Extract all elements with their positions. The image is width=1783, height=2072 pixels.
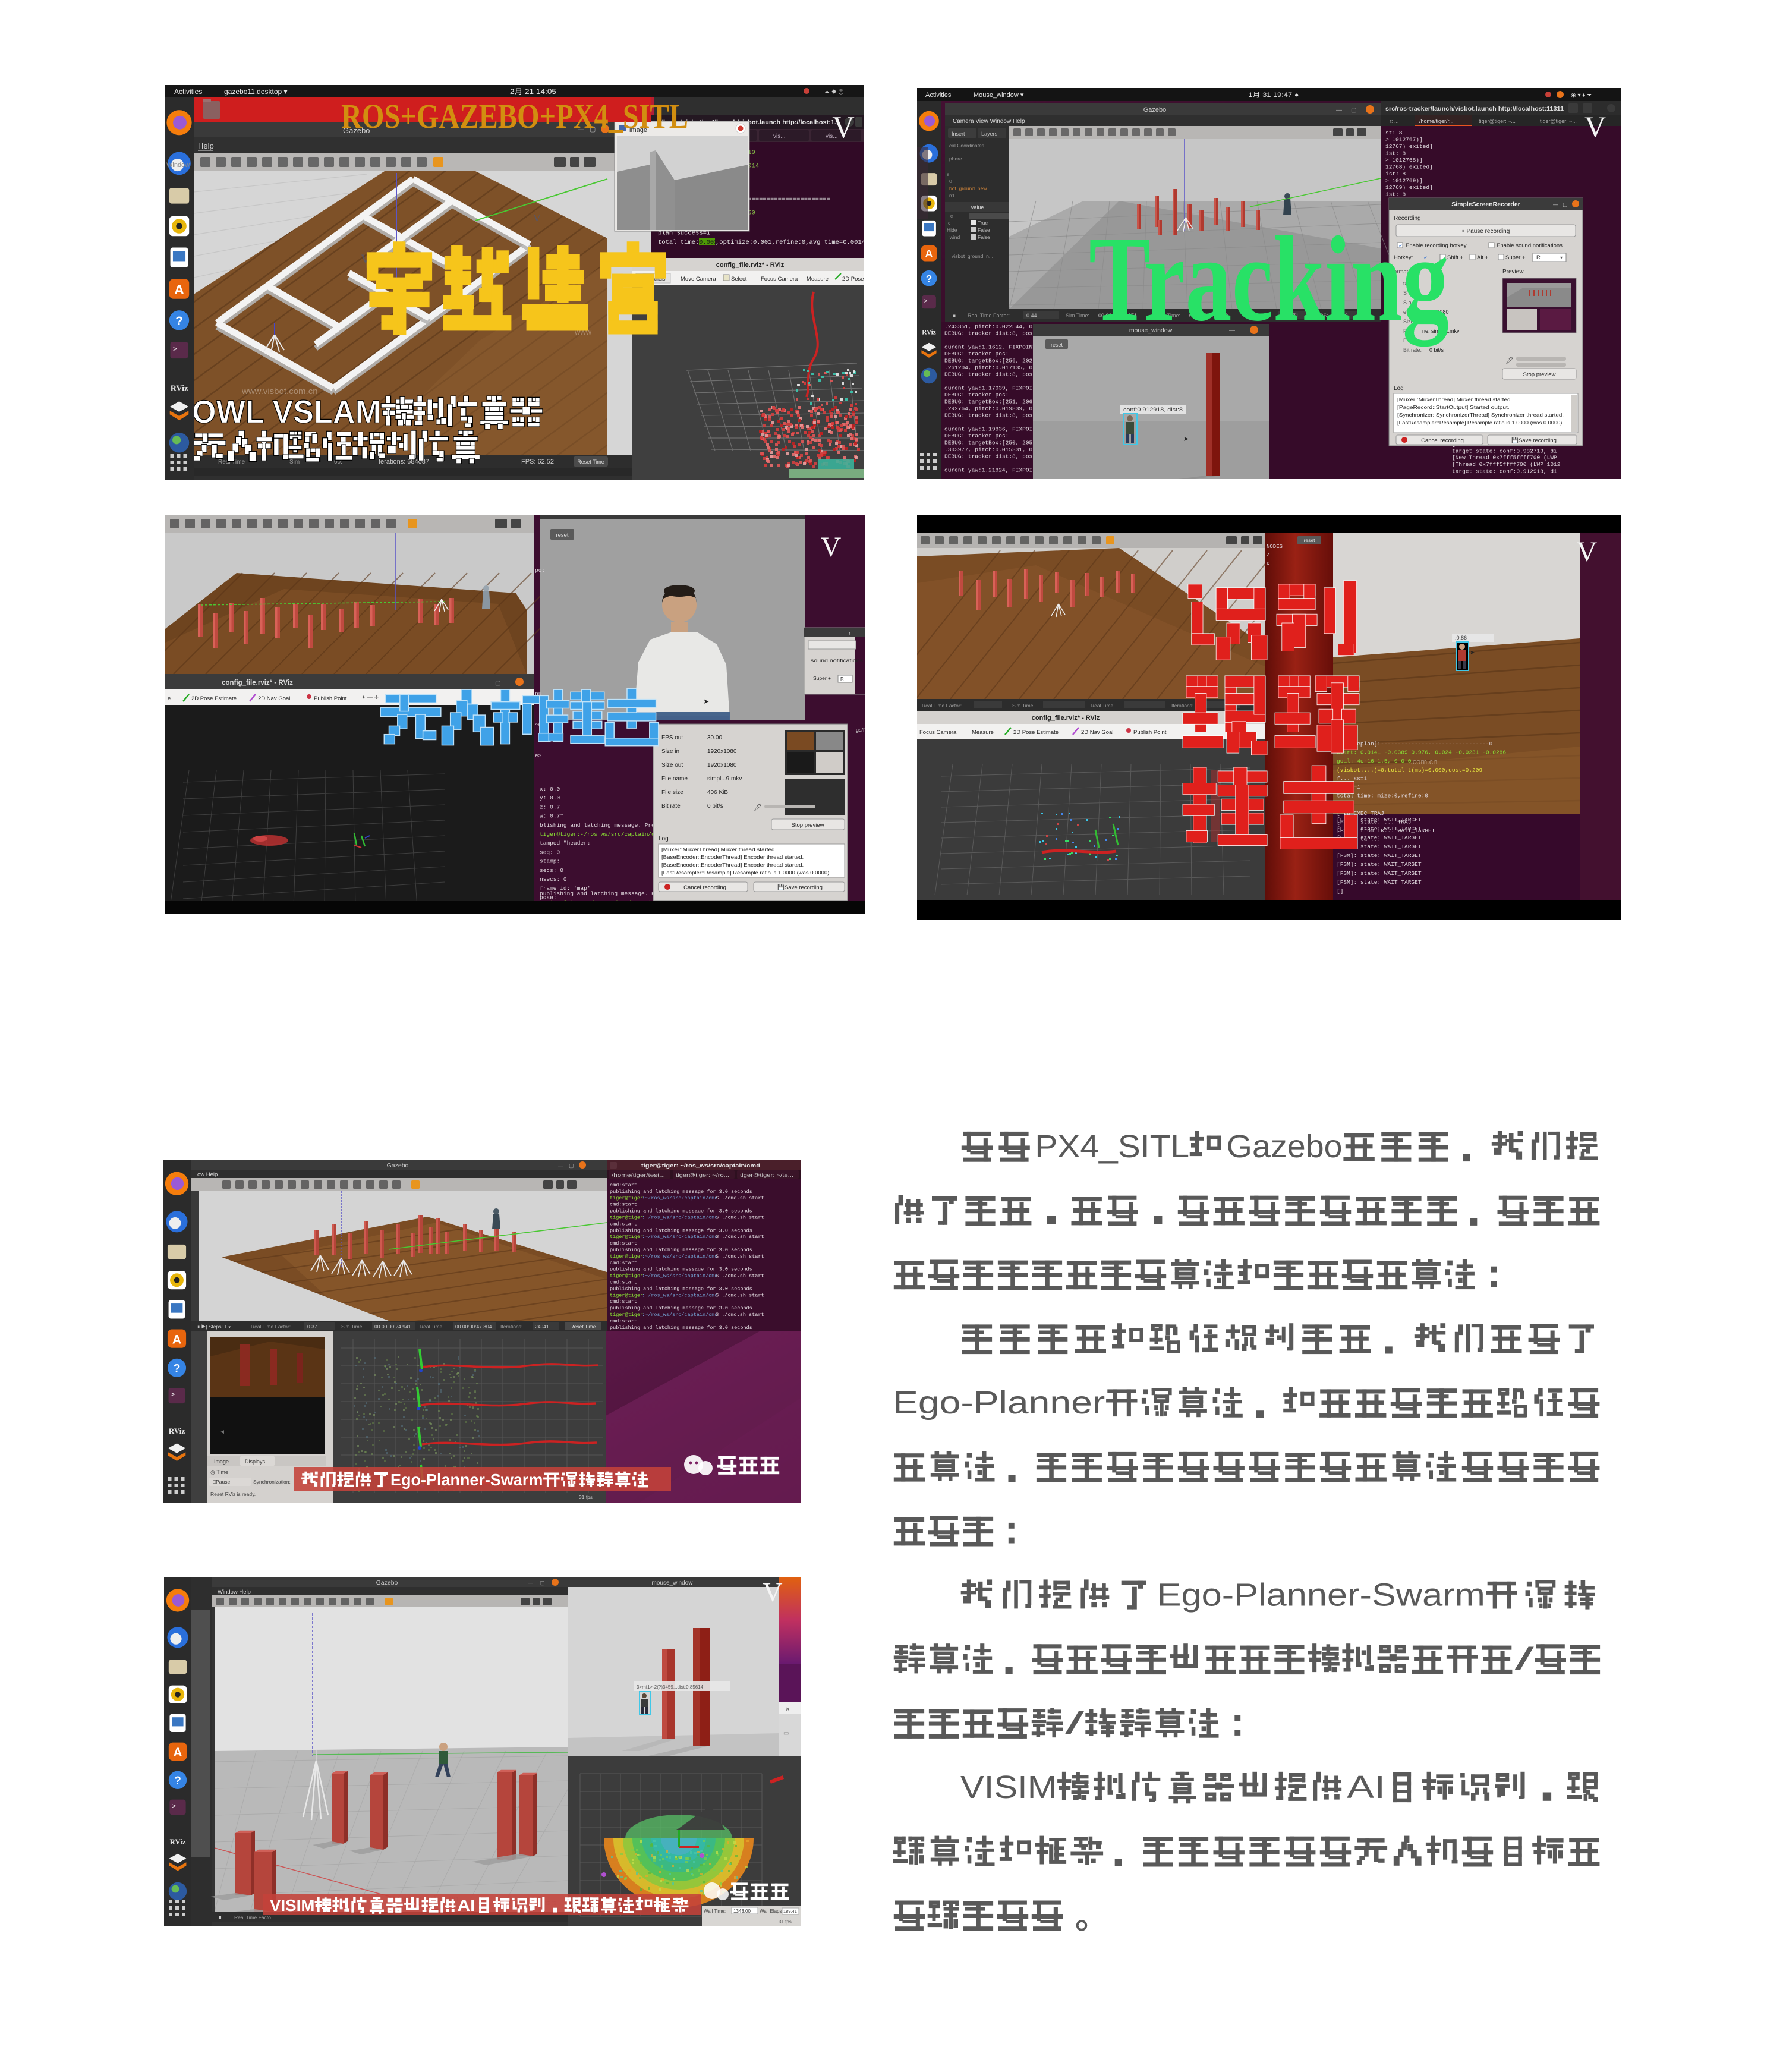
- svg-text:▭: ▭: [783, 1730, 789, 1737]
- svg-text:[FastResampler::Resample] Resa: [FastResampler::Resample] Resample ratio…: [661, 870, 831, 876]
- svg-text:$ ./cmd.sh start: $ ./cmd.sh start: [716, 1273, 764, 1279]
- svg-text:Iterations:: Iterations:: [500, 1324, 522, 1330]
- svg-text:$ ./cmd.sh start: $ ./cmd.sh start: [716, 1312, 764, 1318]
- svg-text:—: —: [528, 1580, 533, 1586]
- svg-text:➤: ➤: [1183, 436, 1189, 443]
- svg-text:cmd:start: cmd:start: [610, 1221, 637, 1227]
- svg-text:00 00:00:47.304: 00 00:00:47.304: [455, 1324, 492, 1330]
- svg-text:/: /: [1514, 1641, 1534, 1677]
- svg-text:A: A: [173, 1746, 182, 1759]
- svg-text:tiger@tiger: ~/ros_ws/src/capt: tiger@tiger: ~/ros_ws/src/captain/cmd: [641, 1163, 760, 1169]
- svg-text:DEBUG: targetBox:[250, 205,: DEBUG: targetBox:[250, 205,: [944, 440, 1036, 446]
- svg-text:VISIM: VISIM: [960, 1769, 1057, 1805]
- svg-text:c: c: [950, 213, 953, 219]
- svg-text:cmd:start: cmd:start: [610, 1240, 637, 1246]
- svg-text:tiger@tiger: tiger@tiger: [610, 1312, 643, 1318]
- svg-text::~/ros_ws/src/captain/cmd: :~/ros_ws/src/captain/cmd: [642, 1195, 718, 1201]
- svg-text:goal: 4e-16 1.5,: goal: 4e-16 1.5, 0 0 0: [1337, 758, 1412, 764]
- svg-text:x: 0.0: x: 0.0: [540, 786, 560, 792]
- svg-text:.303977, pitch:0.015331, 0.: .303977, pitch:0.015331, 0.: [944, 446, 1036, 453]
- svg-text:2D Nav Goal: 2D Nav Goal: [258, 695, 290, 702]
- svg-text:cal Coordinates: cal Coordinates: [949, 143, 984, 149]
- svg-text:/: /: [1065, 1705, 1085, 1741]
- svg-text:curent yaw:1.1612, FIXPOINT: curent yaw:1.1612, FIXPOINT: [944, 344, 1036, 351]
- svg-text:Sim Time:: Sim Time:: [1012, 703, 1035, 708]
- svg-text:Insert: Insert: [952, 131, 965, 137]
- svg-text:po:: po:: [535, 567, 545, 574]
- svg-text:DEBUG: tracker pos:: DEBUG: tracker pos:: [944, 433, 1009, 439]
- svg-text:0 bit/s: 0 bit/s: [1429, 347, 1444, 353]
- svg-text:V: V: [1584, 110, 1606, 143]
- svg-text:Mouse_window ▾: Mouse_window ▾: [974, 92, 1024, 99]
- svg-text:⏶ ◆ ⏻: ⏶ ◆ ⏻: [824, 89, 844, 96]
- svg-text:File size: File size: [661, 789, 683, 796]
- svg-text:✕: ✕: [785, 1706, 790, 1713]
- svg-text:[FastResampler::Resample] Resa: [FastResampler::Resample] Resample ratio…: [1397, 420, 1564, 426]
- svg-text:.261204, pitch:0.017135, 0.: .261204, pitch:0.017135, 0.: [944, 364, 1036, 371]
- svg-text:Cancel recording: Cancel recording: [1421, 437, 1464, 444]
- svg-text:[FSM]: state: WAIT_TARGET: [FSM]: state: WAIT_TARGET: [1337, 861, 1422, 868]
- svg-text:⏸: ⏸: [953, 313, 956, 320]
- svg-text:Sim Time:: Sim Time:: [1066, 313, 1089, 319]
- svg-text:Preview: Preview: [1502, 269, 1524, 275]
- svg-text:V: V: [533, 212, 541, 224]
- svg-text:Cancel recording: Cancel recording: [683, 884, 726, 891]
- svg-text:gs/P: gs/P: [856, 727, 865, 733]
- svg-text:ow Help: ow Help: [197, 1172, 218, 1178]
- svg-text:Real Time:: Real Time:: [1091, 703, 1115, 708]
- svg-text:Sim Time:: Sim Time:: [341, 1324, 364, 1330]
- svg-text:tiger@tiger: tiger@tiger: [610, 1234, 643, 1240]
- svg-text:eS: eS: [535, 752, 542, 759]
- svg-text:> 1012769)]: > 1012769)]: [1385, 178, 1423, 184]
- svg-text:Log: Log: [659, 836, 669, 842]
- svg-text:>: >: [924, 298, 928, 305]
- svg-text:publishing and latching messag: publishing and latching message for 3.0 …: [610, 1325, 752, 1331]
- svg-text:30.00: 30.00: [707, 735, 722, 741]
- svg-text:Focus Camera: Focus Camera: [761, 276, 798, 282]
- svg-text:r: r: [849, 631, 850, 637]
- svg-text:12769) exited]: 12769) exited]: [1385, 184, 1433, 191]
- svg-text:Super +: Super +: [1505, 254, 1526, 261]
- svg-text:.com.cn: .com.cn: [1410, 757, 1438, 766]
- svg-text:[PageRecord::StartOutput] Star: [PageRecord::StartOutput] Started output…: [1397, 404, 1510, 410]
- svg-text:31 fps: 31 fps: [779, 1919, 792, 1925]
- svg-text:—: —: [1336, 107, 1342, 114]
- svg-text:RViz: RViz: [170, 1838, 186, 1846]
- svg-text:Iterations:: Iterations:: [1171, 703, 1193, 708]
- svg-text:Publish Point: Publish Point: [1133, 729, 1167, 736]
- svg-text:y: 0.0: y: 0.0: [540, 795, 560, 801]
- svg-text:31 fps: 31 fps: [579, 1494, 593, 1500]
- svg-text:[Muxer::MuxerThread] Muxer thr: [Muxer::MuxerThread] Muxer thread starte…: [1397, 396, 1512, 402]
- svg-text:/home/tiger/test...: /home/tiger/test...: [612, 1172, 665, 1178]
- svg-text:>: >: [172, 1803, 176, 1810]
- svg-text:.292764, pitch:0.019839, 0.: .292764, pitch:0.019839, 0.: [944, 405, 1036, 412]
- svg-text:▢: ▢: [1563, 201, 1568, 207]
- svg-text:publishing and latching messag: publishing and latching message for 3.0 …: [610, 1247, 752, 1253]
- svg-text:cmd:start: cmd:start: [610, 1280, 637, 1286]
- svg-text:[FSM]: state: WAIT_TARGET: [FSM]: state: WAIT_TARGET: [1337, 870, 1422, 877]
- svg-text:406 KiB: 406 KiB: [707, 789, 728, 796]
- svg-text:Super +: Super +: [813, 675, 831, 681]
- svg-text:curent yaw:1.19836, FIXPOIN: curent yaw:1.19836, FIXPOIN: [944, 426, 1036, 433]
- svg-text:ist: 8: ist: 8: [1385, 191, 1406, 198]
- svg-text:tiger@tiger: ~/te...: tiger@tiger: ~/te...: [740, 1172, 793, 1178]
- svg-text:mouse_window: mouse_window: [652, 1580, 694, 1586]
- svg-text:OWL VSLAM: OWL VSLAM: [192, 393, 381, 430]
- svg-text:s: s: [947, 171, 949, 177]
- svg-text:Log: Log: [1394, 385, 1404, 392]
- svg-text:0.44: 0.44: [1026, 313, 1037, 319]
- svg-text:NODES: NODES: [1267, 544, 1283, 550]
- svg-text:?: ?: [174, 1775, 181, 1787]
- svg-text::~/ros_ws/src/captain/cmd: :~/ros_ws/src/captain/cmd: [642, 1234, 718, 1240]
- svg-text:Gazebo: Gazebo: [376, 1579, 398, 1586]
- svg-text:0.37: 0.37: [307, 1324, 317, 1330]
- svg-text:[Ego replan]:-----------------: [Ego replan]:---------------------------…: [1337, 741, 1493, 747]
- svg-text:2D Pose Estimate: 2D Pose Estimate: [191, 695, 237, 702]
- svg-text:Image: Image: [214, 1459, 229, 1465]
- svg-text:tiger@tiger:-/ros_ws/src/capta: tiger@tiger:-/ros_ws/src/captain/c: [540, 831, 655, 837]
- svg-text:V: V: [1243, 621, 1248, 629]
- svg-text:ist: 8: ist: 8: [1385, 150, 1406, 157]
- svg-text:Real Time Factor:: Real Time Factor:: [922, 703, 962, 708]
- svg-text:tiger@tiger: tiger@tiger: [610, 1292, 643, 1298]
- svg-text:V: V: [821, 531, 842, 563]
- svg-text:Stop preview: Stop preview: [792, 822, 824, 829]
- svg-text:[FSM]: state: WAIT_TARGET: [FSM]: state: WAIT_TARGET: [1337, 852, 1422, 859]
- svg-text:1920x1080: 1920x1080: [707, 748, 737, 755]
- svg-text:$ ./cmd.sh start: $ ./cmd.sh start: [716, 1195, 764, 1201]
- svg-text:0.001: 0.001: [699, 239, 718, 246]
- svg-text:r: ...: r: ...: [1390, 118, 1399, 124]
- svg-text:publishing and latching messag: publishing and latching message for 3.0 …: [610, 1286, 752, 1292]
- svg-text:A: A: [925, 248, 933, 260]
- svg-text:reset: reset: [556, 532, 568, 539]
- svg-text:False: False: [978, 234, 990, 240]
- svg-text:Focus Camera: Focus Camera: [919, 729, 957, 736]
- svg-text:False: False: [978, 227, 990, 233]
- svg-text:Camera View Window Help: Camera View Window Help: [953, 118, 1025, 125]
- svg-text:V: V: [1577, 536, 1598, 568]
- svg-text:189.41: 189.41: [783, 1909, 797, 1914]
- svg-text:◄: ◄: [219, 1429, 225, 1435]
- svg-text:⏸ ▶| Steps: 1 ▾: ⏸ ▶| Steps: 1 ▾: [197, 1324, 231, 1330]
- svg-text:1月 31 19:47 ●: 1月 31 19:47 ●: [1249, 92, 1299, 99]
- svg-text:V: V: [832, 111, 855, 144]
- svg-text:reset: reset: [1304, 537, 1316, 543]
- svg-text:$ ./cmd.sh start: $ ./cmd.sh start: [716, 1292, 764, 1298]
- svg-text::~/ros_ws/src/captain/cmd: :~/ros_ws/src/captain/cmd: [642, 1273, 718, 1279]
- svg-text:⎕Pause: ⎕Pause: [213, 1479, 230, 1485]
- svg-text:3>mf1>-2(?)3459...dist:0.85614: 3>mf1>-2(?)3459...dist:0.85614: [637, 1684, 704, 1690]
- svg-text:start: 0.0141 -0.0389 0.976: start: 0.0141 -0.0389 0.976, 0.024 -0.02…: [1337, 750, 1506, 756]
- svg-text:▢: ▢: [569, 1163, 574, 1169]
- svg-text:File name: File name: [661, 776, 688, 782]
- svg-text:Real Time:: Real Time:: [420, 1324, 444, 1330]
- svg-text:Window: Window: [166, 162, 190, 169]
- svg-text:total time:: total time:: [658, 239, 699, 246]
- svg-text:Alt +: Alt +: [1477, 254, 1489, 261]
- svg-text:SimpleScreenRecorder: SimpleScreenRecorder: [1451, 201, 1520, 208]
- svg-text:publishing and latching messag: publishing and latching message for 3.0 …: [610, 1208, 752, 1214]
- svg-text:▢: ▢: [1351, 107, 1356, 114]
- svg-text:💾Save recording: 💾Save recording: [777, 884, 823, 891]
- svg-text:vis...: vis...: [773, 133, 786, 140]
- svg-text:Measure: Measure: [807, 276, 829, 282]
- svg-text:seq: 0: seq: 0: [540, 849, 560, 855]
- svg-text:V: V: [763, 1577, 782, 1607]
- svg-text:> 1012768)]: > 1012768)]: [1385, 157, 1423, 163]
- svg-text:stamp:: stamp:: [540, 858, 560, 865]
- svg-text:💾Save recording: 💾Save recording: [1511, 437, 1557, 444]
- svg-text:▢: ▢: [540, 1580, 545, 1586]
- svg-text:Activities: Activities: [925, 92, 952, 99]
- svg-text:tiger@tiger: ~...: tiger@tiger: ~...: [1479, 118, 1516, 124]
- svg-text:Displays: Displays: [245, 1459, 266, 1465]
- svg-text:_wind: _wind: [946, 234, 960, 240]
- svg-text:Layers: Layers: [981, 131, 998, 137]
- svg-text:AI: AI: [1347, 1769, 1385, 1805]
- svg-text:[Thread 0x7fff5ffff700 (LWP 10: [Thread 0x7fff5ffff700 (LWP 1012: [1452, 461, 1561, 468]
- svg-text:1920x1080: 1920x1080: [707, 762, 737, 769]
- svg-text:DEBUG: tracker dist:8, pos:: DEBUG: tracker dist:8, pos:: [944, 454, 1036, 460]
- svg-text:DEBUG: tracker pos:: DEBUG: tracker pos:: [944, 392, 1009, 398]
- svg-text:DEBUG: tracker pos:: DEBUG: tracker pos:: [944, 351, 1009, 357]
- svg-text:PX4_SITL: PX4_SITL: [1035, 1130, 1189, 1164]
- svg-text:RViz: RViz: [169, 1427, 185, 1435]
- svg-text:Gazebo: Gazebo: [1227, 1130, 1343, 1164]
- svg-text:publishing and latching messag: publishing and latching message for 3.0 …: [610, 1267, 752, 1273]
- svg-text:Ego-Planner-Swarm: Ego-Planner-Swarm: [390, 1470, 543, 1489]
- svg-text:⏸: ⏸: [219, 1914, 222, 1921]
- svg-text:?: ?: [175, 314, 183, 328]
- svg-text:Sim: Sim: [289, 459, 300, 465]
- svg-text:.0.86: .0.86: [1455, 635, 1467, 641]
- svg-text:Window Help: Window Help: [218, 1589, 251, 1595]
- svg-text:DEBUG: tracker dist:8, pos:: DEBUG: tracker dist:8, pos:: [944, 371, 1036, 378]
- svg-text:12768) exited]: 12768) exited]: [1385, 164, 1433, 171]
- svg-text:Reset RViz is ready.: Reset RViz is ready.: [210, 1491, 256, 1497]
- svg-text:Reset Time: Reset Time: [577, 459, 604, 465]
- svg-text:st: 8: st: 8: [1385, 130, 1403, 136]
- svg-text:Help: Help: [198, 141, 214, 150]
- svg-text:2月 21 14:05: 2月 21 14:05: [510, 87, 556, 96]
- svg-text:?: ?: [926, 273, 932, 285]
- svg-text:tiger@tiger: tiger@tiger: [610, 1254, 643, 1259]
- svg-text:curent yaw:1.17039, FIXPOIN: curent yaw:1.17039, FIXPOIN: [944, 385, 1036, 392]
- svg-text:cmd:start: cmd:start: [610, 1260, 637, 1266]
- svg-text:Activities: Activities: [174, 87, 202, 96]
- svg-text:DEBUG: targetBox:[251, 206,: DEBUG: targetBox:[251, 206,: [944, 399, 1036, 405]
- svg-text:R: R: [840, 676, 844, 682]
- svg-text:simpl...9.mkv: simpl...9.mkv: [707, 776, 742, 782]
- svg-text:Stop preview: Stop preview: [1523, 371, 1556, 378]
- svg-text:curent yaw:1.21824, FIXPOIN: curent yaw:1.21824, FIXPOIN: [944, 467, 1036, 474]
- svg-text:Move Camera: Move Camera: [681, 276, 716, 282]
- svg-text:VISIM: VISIM: [270, 1896, 314, 1914]
- svg-text:publishing and latching messag: publishing and latching message for 3.0 …: [610, 1189, 752, 1195]
- svg-text:cmd:start: cmd:start: [610, 1202, 637, 1208]
- svg-text:[BaseEncoder::EncoderThread] E: [BaseEncoder::EncoderThread] Encoder thr…: [661, 862, 804, 868]
- svg-text:ist: 8: ist: 8: [1385, 171, 1406, 177]
- svg-text:1343.00: 1343.00: [733, 1909, 751, 1914]
- svg-text:Size out: Size out: [661, 762, 683, 769]
- svg-text:Size in: Size in: [661, 748, 679, 755]
- svg-text:Ego-Planner: Ego-Planner: [893, 1385, 1105, 1421]
- svg-text:f... ss=1: f... ss=1: [1337, 775, 1368, 782]
- svg-text:Reset Time: Reset Time: [571, 1324, 596, 1330]
- svg-text:0: 0: [949, 178, 952, 184]
- svg-text:24941: 24941: [535, 1324, 549, 1330]
- svg-text:e: e: [168, 695, 171, 702]
- svg-text:(visbot....)=0,total_t(ms)=0.0: (visbot....)=0,total_t(ms)=0.000,cost=0.…: [1337, 767, 1482, 773]
- svg-text:config_file.rviz* - RViz: config_file.rviz* - RViz: [716, 262, 785, 269]
- svg-text:publishing and latching messag: publishing and latching message for 3.0 …: [610, 1305, 752, 1311]
- svg-text:Real Time Factor:: Real Time Factor:: [968, 313, 1010, 319]
- svg-text:conf:0.912918, dist:8: conf:0.912918, dist:8: [1123, 407, 1183, 412]
- svg-text:$ ./cmd.sh start: $ ./cmd.sh start: [716, 1254, 764, 1259]
- svg-text:>: >: [171, 1391, 175, 1399]
- svg-text:Select: Select: [731, 276, 747, 282]
- svg-text:🖊: 🖊: [754, 804, 762, 811]
- svg-text:[BaseEncoder::EncoderThread] E: [BaseEncoder::EncoderThread] Encoder thr…: [661, 854, 804, 860]
- svg-text:publishing and latching messag: publishing and latching message for 3.0 …: [610, 1227, 752, 1233]
- svg-text:/: /: [1267, 552, 1269, 558]
- svg-text::~/ros_ws/src/captain/cmd: :~/ros_ws/src/captain/cmd: [642, 1292, 718, 1298]
- svg-text:/home/tiger/r...: /home/tiger/r...: [1419, 118, 1454, 124]
- svg-text:True: True: [978, 220, 988, 226]
- svg-text:blishing and latching message.: blishing and latching message. Pre: [540, 822, 655, 829]
- svg-text:➤: ➤: [1470, 650, 1475, 656]
- svg-text:e: e: [1267, 560, 1269, 566]
- svg-text:w: 0.7": w: 0.7": [540, 813, 563, 820]
- svg-text:target state: conf:0.982713, d: target state: conf:0.982713, di: [1452, 448, 1557, 454]
- svg-text:DEBUG: tracker dist:8, pos:: DEBUG: tracker dist:8, pos:: [944, 412, 1036, 419]
- svg-text::~/ros_ws/src/captain/cmd: :~/ros_ws/src/captain/cmd: [642, 1215, 718, 1221]
- svg-text:12767) exited]: 12767) exited]: [1385, 143, 1433, 150]
- svg-text:2D Pose Estimate: 2D Pose Estimate: [1013, 729, 1059, 736]
- svg-text:cmd:start: cmd:start: [610, 1182, 637, 1188]
- svg-text:[FSM]: state: WAIT_TARGET: [FSM]: state: WAIT_TARGET: [1337, 879, 1422, 886]
- svg-text:gazebo11.desktop ▾: gazebo11.desktop ▾: [224, 87, 288, 96]
- svg-text:sound notifications: sound notifications: [811, 657, 863, 663]
- svg-text:tiger@tiger: ~...: tiger@tiger: ~...: [1540, 118, 1577, 124]
- svg-text:ROS+GAZEBO+PX4_SITL: ROS+GAZEBO+PX4_SITL: [341, 97, 688, 136]
- svg-text:Synchronization:: Synchronization:: [253, 1479, 291, 1485]
- svg-text:Measure: Measure: [972, 729, 994, 736]
- svg-text:$ ./cmd.sh start: $ ./cmd.sh start: [716, 1234, 764, 1240]
- svg-text:?: ?: [173, 1362, 180, 1375]
- svg-text:➤: ➤: [703, 697, 709, 706]
- svg-text:visbot_ground_n...: visbot_ground_n...: [952, 253, 993, 259]
- svg-text:Ego-Planner-Swarm: Ego-Planner-Swarm: [1157, 1577, 1485, 1613]
- svg-text:bot_ground_new: bot_ground_new: [949, 185, 987, 191]
- svg-text::~/ros_ws/src/captain/cmd: :~/ros_ws/src/captain/cmd: [642, 1254, 718, 1259]
- svg-text:RViz: RViz: [171, 384, 188, 393]
- svg-text:Gazebo: Gazebo: [1143, 106, 1167, 114]
- svg-text:tiger@tiger: tiger@tiger: [610, 1273, 643, 1279]
- svg-text:,optimize:0.001,refine:0,avg_t: ,optimize:0.001,refine:0,avg_time=0.0014: [716, 239, 864, 246]
- svg-text:AI: AI: [457, 1896, 475, 1914]
- svg-text:z: 0.7: z: 0.7: [540, 804, 560, 810]
- svg-text:.243351, pitch:0.022544, 0.: .243351, pitch:0.022544, 0.: [944, 323, 1036, 330]
- svg-text:reset: reset: [1051, 342, 1063, 348]
- svg-text:—: —: [1553, 201, 1558, 207]
- svg-text:secs: 0: secs: 0: [540, 867, 563, 874]
- svg-text:R: R: [1536, 254, 1541, 261]
- svg-text:src/ros-tracker/launch/visbot.: src/ros-tracker/launch/visbot.launch htt…: [1385, 106, 1564, 112]
- svg-text:Publish Point: Publish Point: [314, 695, 347, 702]
- svg-text:✦ — ✛: ✦ — ✛: [361, 694, 379, 700]
- svg-text:target state: conf:0.912918, d: target state: conf:0.912918, di: [1452, 468, 1557, 474]
- svg-text:⏸ Pause recording: ⏸ Pause recording: [1462, 228, 1510, 235]
- svg-text:2D Nav Goal: 2D Nav Goal: [1081, 729, 1113, 736]
- svg-text:—: —: [558, 1163, 563, 1169]
- svg-text:Value: Value: [971, 204, 984, 210]
- svg-text:Bit rate: Bit rate: [661, 803, 681, 810]
- svg-text:FPS: 62.52: FPS: 62.52: [521, 458, 554, 465]
- svg-text:FPS out: FPS out: [661, 735, 683, 741]
- svg-text:▾: ▾: [1560, 255, 1563, 260]
- svg-text:Wall Time:: Wall Time:: [704, 1909, 726, 1914]
- svg-text:DEBUG: targetBox:[256, 202,: DEBUG: targetBox:[256, 202,: [944, 358, 1036, 364]
- svg-text:[Synchronizer::SynchronizerThr: [Synchronizer::SynchronizerThread] Synch…: [1397, 412, 1564, 418]
- svg-text:tiger@tiger: tiger@tiger: [610, 1215, 643, 1221]
- svg-text:▢: ▢: [495, 680, 500, 687]
- svg-text:2D Pose Estimate: 2D Pose Estimate: [842, 276, 864, 282]
- svg-text:$ ./cmd.sh start: $ ./cmd.sh start: [716, 1215, 764, 1221]
- svg-text:[Muxer::MuxerThread] Muxer thr: [Muxer::MuxerThread] Muxer thread starte…: [661, 846, 776, 852]
- svg-text:Hide: Hide: [947, 227, 957, 233]
- svg-text:A: A: [174, 282, 184, 297]
- svg-text:config_file.rviz* - RViz: config_file.rviz* - RViz: [1032, 714, 1100, 722]
- svg-text:Tracking: Tracking: [1089, 212, 1449, 347]
- svg-text::~/ros_ws/src/captain/cmd: :~/ros_ws/src/captain/cmd: [642, 1312, 718, 1318]
- svg-text:tamped "header:: tamped "header:: [540, 840, 591, 846]
- svg-text:n1: n1: [949, 193, 955, 199]
- svg-text:cmd:start: cmd:start: [610, 1299, 637, 1305]
- svg-text:tiger@tiger: ~/ro...: tiger@tiger: ~/ro...: [676, 1172, 729, 1178]
- svg-text:cmd:start: cmd:start: [610, 1318, 637, 1324]
- svg-text:RViz: RViz: [922, 329, 935, 336]
- svg-text:A: A: [172, 1332, 181, 1346]
- svg-text:config_file.rviz* - RViz: config_file.rviz* - RViz: [222, 679, 293, 687]
- svg-text:0 bit/s: 0 bit/s: [707, 803, 723, 810]
- svg-text:Gazebo: Gazebo: [387, 1162, 409, 1169]
- svg-text:◉ ▾ ♦ ⏷: ◉ ▾ ♦ ⏷: [1571, 92, 1592, 99]
- svg-text:>: >: [173, 345, 177, 353]
- svg-text:nsecs: 0: nsecs: 0: [540, 876, 567, 883]
- svg-text:🖊: 🖊: [1505, 357, 1514, 364]
- svg-text:Shift +: Shift +: [1447, 254, 1464, 261]
- svg-text:DEBUG: tracker dist:8, pos:: DEBUG: tracker dist:8, pos:: [944, 330, 1036, 337]
- svg-text:phere: phere: [949, 156, 962, 162]
- svg-text:◷ Time: ◷ Time: [210, 1469, 228, 1475]
- svg-text:[New Thread 0x7fff5ffff700 (LW: [New Thread 0x7fff5ffff700 (LWP: [1452, 455, 1557, 461]
- svg-text:> 1012767)]: > 1012767)]: [1385, 137, 1423, 143]
- svg-text:Bit rate:: Bit rate:: [1403, 347, 1422, 353]
- svg-text:Enable sound notifications: Enable sound notifications: [1497, 243, 1563, 249]
- svg-text:Real Time Factor:: Real Time Factor:: [251, 1324, 291, 1330]
- svg-text:Real Time Facto: Real Time Facto: [234, 1914, 271, 1920]
- svg-text:[]: []: [1337, 888, 1343, 895]
- svg-text:00 00:00:24.941: 00 00:00:24.941: [374, 1324, 411, 1330]
- svg-text:tiger@tiger: tiger@tiger: [610, 1195, 643, 1201]
